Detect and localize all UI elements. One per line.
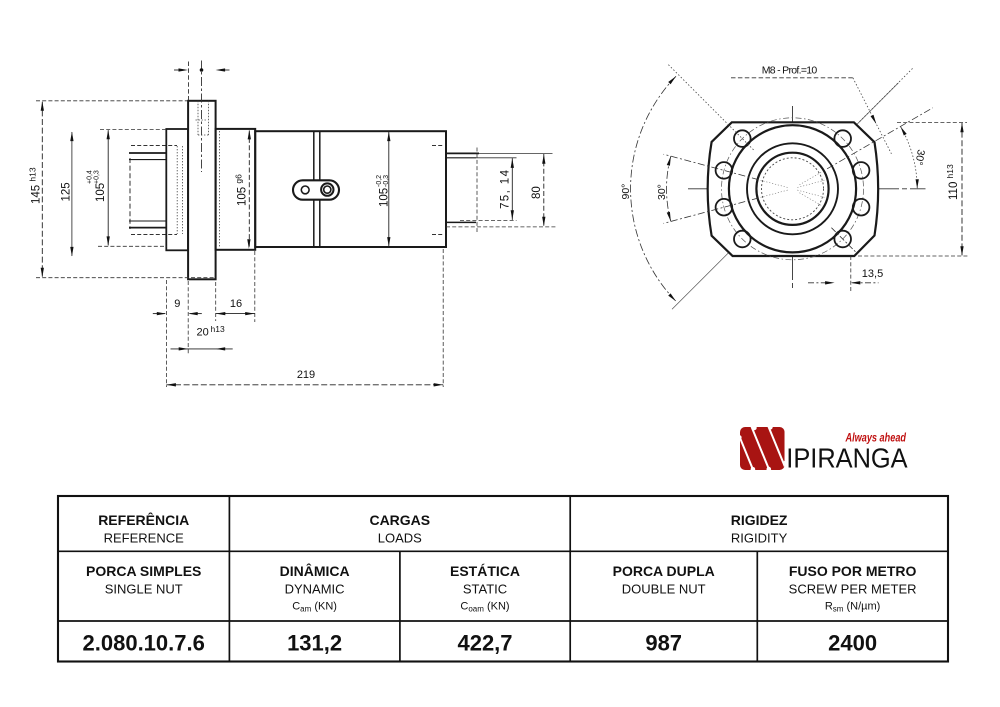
svg-text:13,5: 13,5 <box>862 268 883 280</box>
svg-text:987: 987 <box>645 631 682 656</box>
svg-text:2400: 2400 <box>828 631 877 656</box>
svg-text:M8 - Prof.=10: M8 - Prof.=10 <box>762 65 818 77</box>
svg-text:Always ahead: Always ahead <box>845 432 907 444</box>
svg-text:PORCA DUPLA: PORCA DUPLA <box>613 563 715 579</box>
svg-text:CARGAS: CARGAS <box>369 512 430 528</box>
svg-text:+0,3: +0,3 <box>94 170 101 184</box>
svg-text:PORCA SIMPLES: PORCA SIMPLES <box>86 563 201 579</box>
svg-text:+0,4: +0,4 <box>87 170 94 184</box>
svg-text:h13: h13 <box>211 324 225 334</box>
svg-text:2.080.10.7.6: 2.080.10.7.6 <box>83 631 205 656</box>
svg-text:SINGLE NUT: SINGLE NUT <box>105 582 183 597</box>
svg-text:30°: 30° <box>656 184 668 200</box>
svg-text:Coam (KN): Coam (KN) <box>460 601 509 614</box>
svg-text:80: 80 <box>531 186 543 199</box>
svg-text:-0,2: -0,2 <box>376 175 383 187</box>
svg-text:219: 219 <box>297 369 315 381</box>
svg-text:RIGIDITY: RIGIDITY <box>731 531 788 546</box>
svg-text:422,7: 422,7 <box>457 631 512 656</box>
svg-text:16: 16 <box>230 298 242 310</box>
svg-text:LOADS: LOADS <box>378 531 422 546</box>
svg-text:75, 14: 75, 14 <box>500 169 512 209</box>
svg-text:IPIRANGA: IPIRANGA <box>786 442 908 473</box>
svg-text:-0,3: -0,3 <box>383 175 390 187</box>
svg-text:REFERENCE: REFERENCE <box>104 531 185 546</box>
svg-text:DINÂMICA: DINÂMICA <box>280 562 350 579</box>
svg-text:131,2: 131,2 <box>287 631 342 656</box>
svg-text:90°: 90° <box>620 184 632 200</box>
svg-text:Cam (KN): Cam (KN) <box>292 601 337 614</box>
svg-text:125: 125 <box>61 182 73 201</box>
svg-text:FUSO POR METRO: FUSO POR METRO <box>789 563 917 579</box>
svg-text:9: 9 <box>174 298 180 310</box>
svg-text:REFERÊNCIA: REFERÊNCIA <box>98 511 189 528</box>
svg-text:RIGIDEZ: RIGIDEZ <box>731 512 788 528</box>
svg-text:105: 105 <box>95 183 107 202</box>
svg-text:20: 20 <box>197 327 209 339</box>
svg-text:105: 105 <box>379 188 391 207</box>
svg-text:DOUBLE NUT: DOUBLE NUT <box>622 582 706 597</box>
svg-text:SCREW PER METER: SCREW PER METER <box>789 582 917 597</box>
svg-text:ESTÁTICA: ESTÁTICA <box>450 563 520 579</box>
svg-text:STATIC: STATIC <box>463 582 507 597</box>
svg-text:DYNAMIC: DYNAMIC <box>285 582 345 597</box>
